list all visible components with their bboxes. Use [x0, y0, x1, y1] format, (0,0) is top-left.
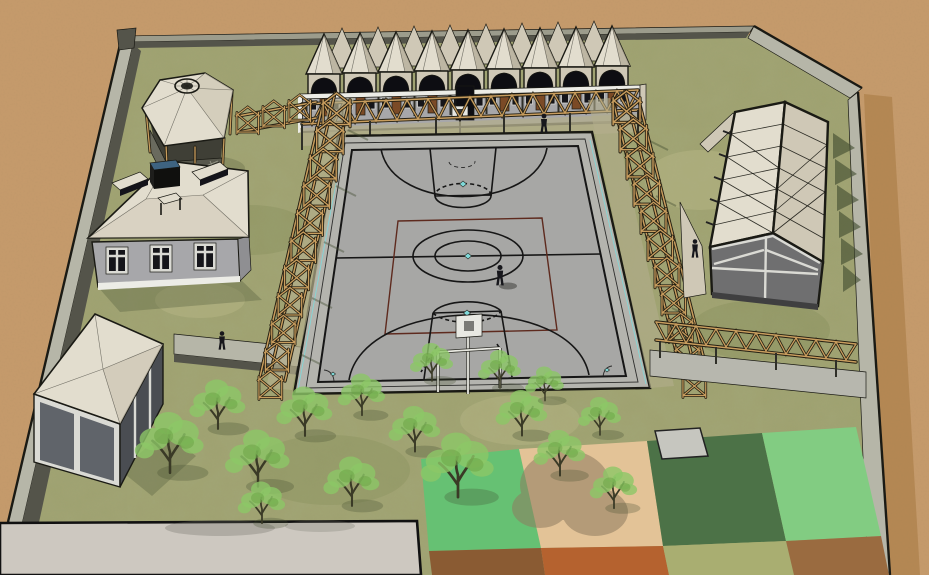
wall-corner-post [117, 28, 136, 50]
basketball-court: basketball court with painted markings [294, 132, 650, 394]
concrete-pad [655, 428, 708, 459]
model-viewport[interactable]: Aerial 3D model of a walled school campu… [0, 0, 929, 575]
plot-tan-brown [786, 536, 889, 575]
admin-windows [106, 243, 216, 274]
foreground-roof: foreground building (flat roof only) [0, 520, 421, 575]
pavilion-glass-a [40, 402, 74, 470]
rooftop-tank [150, 160, 180, 189]
plot-orange [541, 546, 669, 575]
administration-building: hip-roof administration building [88, 160, 262, 312]
site-model-render[interactable]: Aerial 3D model of a walled school campu… [0, 0, 929, 575]
court-surface [318, 146, 626, 382]
plot-olive [663, 541, 794, 575]
tree-shadow-on-roof [285, 520, 355, 532]
plot-brown [429, 548, 545, 575]
